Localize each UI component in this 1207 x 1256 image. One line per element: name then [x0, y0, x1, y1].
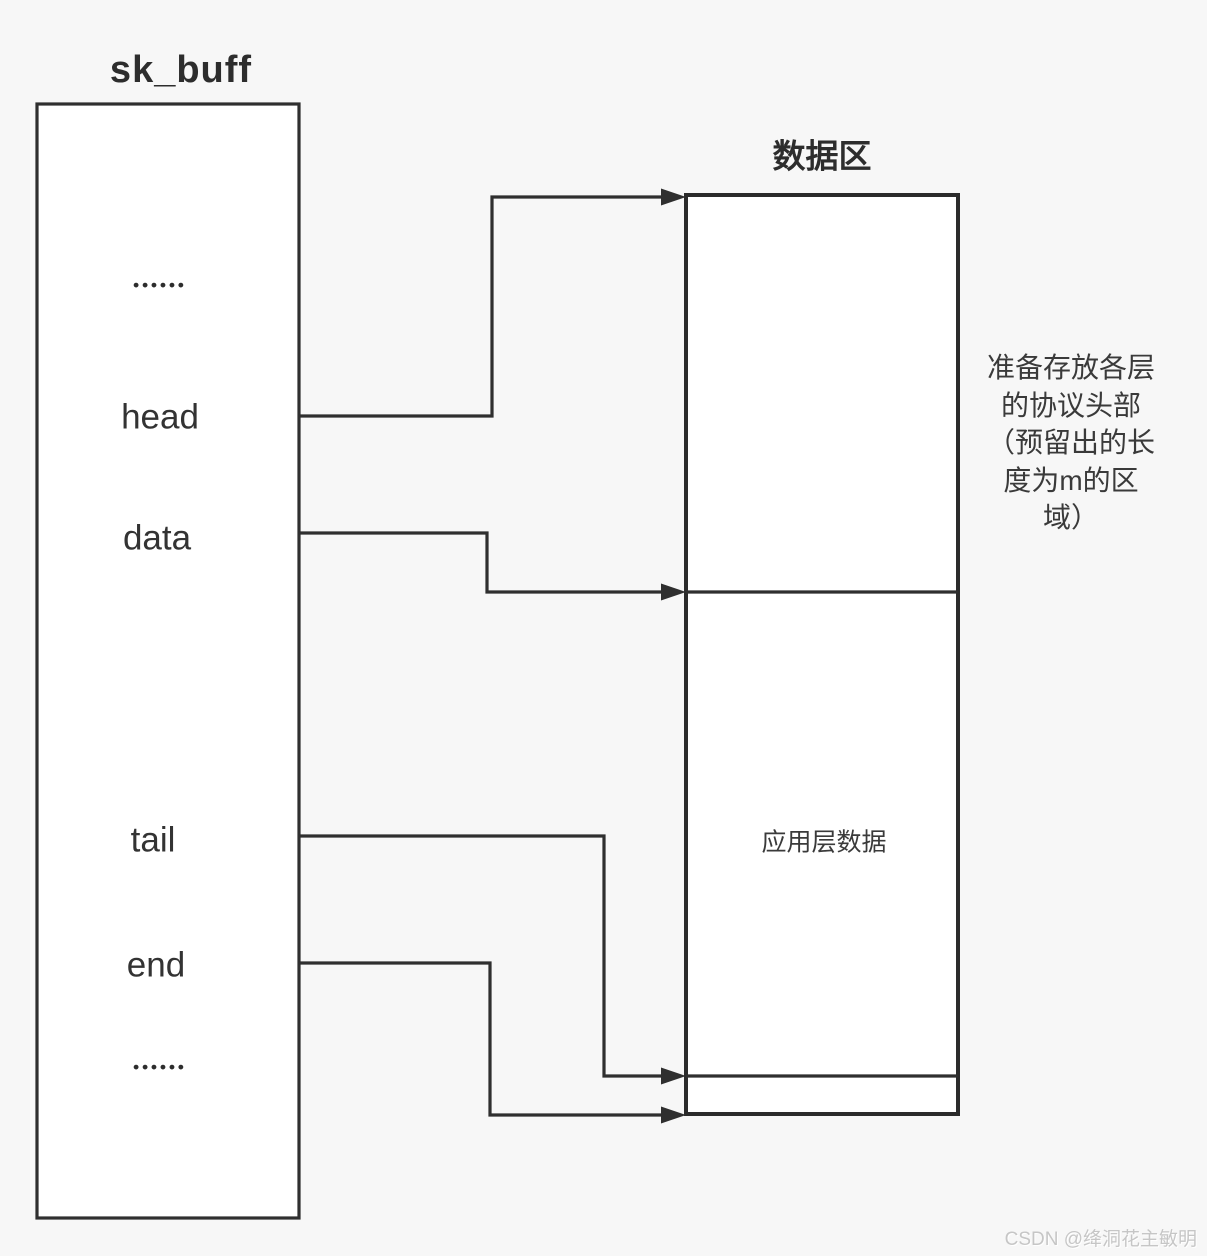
end-pointer-line	[299, 963, 664, 1115]
skbuff-ellipsis-bottom: ••••••	[133, 1059, 187, 1076]
annotation-line: 准备存放各层	[987, 349, 1155, 387]
skbuff-ellipsis-top: ••••••	[133, 277, 187, 294]
data-area-title: 数据区	[773, 140, 872, 173]
annotation-line: 的协议头部	[987, 387, 1155, 425]
app-data-label: 应用层数据	[761, 831, 886, 856]
annotation-line: （预留出的长	[987, 424, 1155, 462]
skbuff-field-tail: tail	[131, 823, 176, 858]
head-pointer-line	[299, 197, 664, 416]
tail-arrow-icon	[661, 1068, 686, 1085]
skbuff-field-head: head	[121, 400, 199, 435]
end-arrow-icon	[661, 1107, 686, 1124]
head-arrow-icon	[661, 189, 686, 206]
skbuff-field-data: data	[123, 521, 191, 556]
watermark: CSDN @绛洞花主敏明	[1005, 1224, 1197, 1251]
annotation-protocol-headers: 准备存放各层 的协议头部 （预留出的长 度为m的区 域）	[987, 349, 1155, 537]
data-arrow-icon	[661, 584, 686, 601]
tail-pointer-line	[299, 836, 664, 1076]
skbuff-title: sk_buff	[110, 51, 252, 89]
annotation-line: 度为m的区	[987, 462, 1155, 500]
diagram-canvas: sk_buff 数据区 •••••• head data tail end ••…	[0, 0, 1207, 1256]
data-pointer-line	[299, 533, 664, 592]
annotation-line: 域）	[987, 499, 1155, 537]
skbuff-box	[37, 104, 299, 1218]
skbuff-field-end: end	[127, 948, 185, 983]
data-area-box	[686, 195, 958, 1114]
